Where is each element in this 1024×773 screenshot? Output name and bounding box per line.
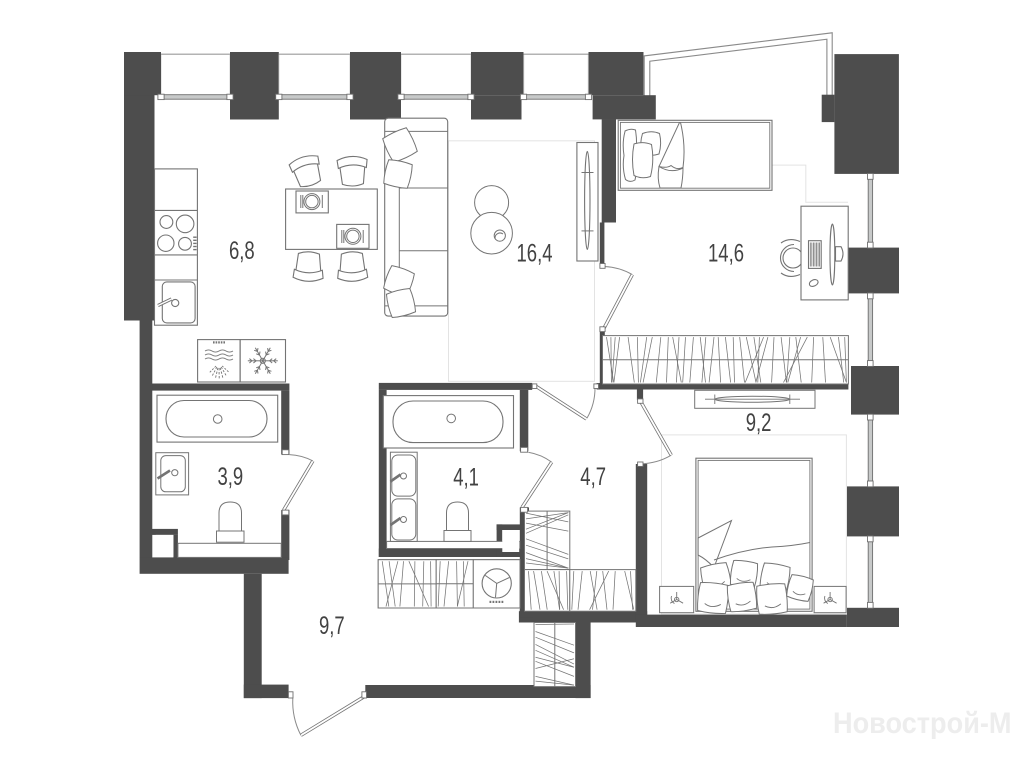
svg-text:16,4: 16,4: [517, 239, 553, 267]
svg-text:14,6: 14,6: [708, 239, 744, 267]
svg-text:3,9: 3,9: [218, 462, 244, 490]
svg-text:9,2: 9,2: [746, 408, 772, 436]
svg-text:4,7: 4,7: [580, 462, 606, 490]
svg-text:Новострой-М: Новострой-М: [833, 707, 1011, 740]
svg-text:9,7: 9,7: [319, 611, 345, 639]
svg-text:6,8: 6,8: [229, 236, 255, 264]
svg-text:4,1: 4,1: [453, 463, 479, 491]
